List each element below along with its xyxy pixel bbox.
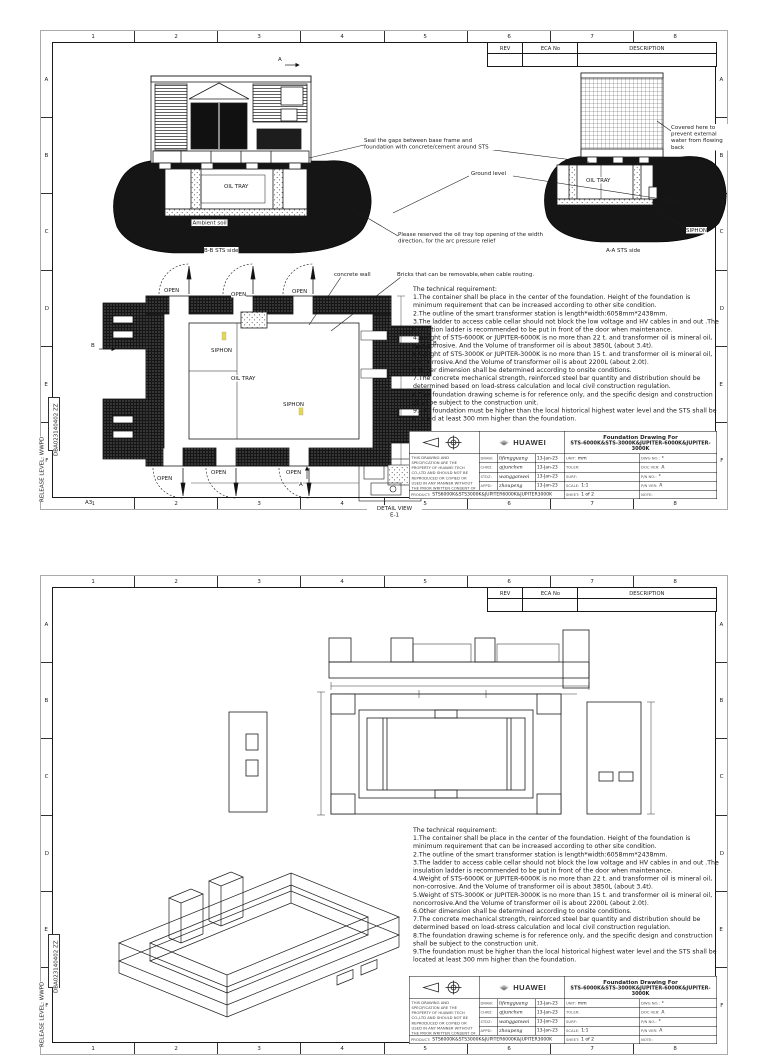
projection-symbol-2 — [410, 977, 480, 999]
plan-oil-pit — [189, 323, 359, 439]
standardized-by: wangganwei — [498, 472, 536, 481]
legal-notice: THIS DRAWING AND SPECIFICATION ARE THE P… — [410, 454, 480, 490]
label-bb-sts-side: B-B STS side — [204, 247, 238, 254]
cone-icon — [423, 438, 438, 447]
foundation-isometric-view — [119, 872, 399, 1017]
tech-item: 4.Weight of STS-6000K or JUPITER-6000K i… — [413, 875, 719, 891]
label-oil-tray-aa: OIL TRAY — [586, 177, 610, 184]
label-open-1: OPEN — [164, 287, 179, 294]
note-oil-tray-opening: Please reserved the oil tray top opening… — [398, 231, 553, 244]
sheet-number: 1 of 2 — [581, 492, 594, 497]
label-open-6: OPEN — [286, 469, 301, 476]
title-block: HUAWEI Foundation Drawing For STS-6000K&… — [409, 431, 717, 499]
plan-left-wing-bottom — [103, 399, 146, 459]
foundation-side-view-left — [229, 712, 267, 812]
drawing-sheet-2: 12345678 12345678 ABCDEF ABCDEF REV ECA … — [40, 575, 728, 1055]
huawei-flower-icon — [497, 982, 510, 994]
checked-by: qijunchen — [498, 463, 536, 472]
plan-view — [99, 264, 431, 498]
bb-gravel-strip — [165, 209, 307, 216]
scale-value: 1:1 — [581, 483, 588, 488]
tech-item: 3.The ladder to access cable cellar shou… — [413, 858, 719, 874]
release-level-2: RELEASE LEVEL: WWPD — [39, 982, 45, 1047]
technical-requirements: The technical requirement: 1.The contain… — [413, 285, 719, 423]
label-open-2: OPEN — [231, 291, 246, 298]
label-siphon-aa: SIPHON — [686, 227, 707, 234]
tech-item: 5.Weight of STS-3000K or JUPITER-3000K i… — [413, 891, 719, 907]
signature-table: DRAW:lifengguang13-Jan-23 CHKD:qijunchen… — [480, 454, 565, 490]
bb-section-view — [113, 65, 371, 253]
drawing-number-vertical-2: DBA023140402 ZZ — [53, 940, 59, 993]
label-siphon-plan-2: SIPHON — [283, 401, 304, 408]
tech-item: 9.The foundation must be higher than the… — [413, 948, 719, 964]
tech-item: 3.The ladder to access cable cellar shou… — [413, 317, 719, 333]
label-aa-sts-side: A-A STS side — [606, 247, 640, 254]
dwg-no: * — [662, 456, 664, 461]
drawing-number-vertical: DBA023140402 ZZ — [53, 403, 59, 456]
foundation-side-view-right — [587, 702, 641, 814]
foundation-plan-view — [331, 694, 561, 814]
tech-item: 1.The container shall be place in the ce… — [413, 293, 719, 309]
section-marker-a-bottom: A — [299, 481, 303, 488]
title-block-2: HUAWEI Foundation Drawing For STS-6000K&… — [409, 976, 717, 1044]
huawei-logo-2: HUAWEI — [480, 977, 565, 999]
tech-item: 9.The foundation must be higher than the… — [413, 407, 719, 423]
tech-item: 4.Weight of STS-6000K or JUPITER-6000K i… — [413, 334, 719, 350]
note-ground-level: Ground level — [471, 170, 506, 177]
tech-item: 7.The concrete mechanical strength, rein… — [413, 915, 719, 931]
approved-by: zhoupeng — [498, 481, 536, 490]
label-oil-tray-plan: OIL TRAY — [231, 375, 255, 382]
note-bricks-removable: Bricks that can be removable,when cable … — [397, 271, 534, 278]
sheet-size-a3: A3 — [85, 499, 92, 506]
plan-left-wing-top — [103, 303, 146, 349]
tech-item: 8.The foundation drawing scheme is for r… — [413, 390, 719, 406]
foundation-elevation-view — [329, 630, 589, 688]
tech-item: 6.Other dimension shall be determined ac… — [413, 907, 719, 915]
tech-item: 2.The outline of the smart transformer s… — [413, 850, 719, 858]
section-marker-b-left: B — [91, 342, 95, 349]
tech-item: 8.The foundation drawing scheme is for r… — [413, 931, 719, 947]
label-open-3: OPEN — [292, 288, 307, 295]
aa-container — [581, 73, 663, 157]
huawei-flower-icon — [497, 437, 510, 449]
label-open-5: OPEN — [211, 469, 226, 476]
aa-section-view — [544, 73, 726, 242]
company-name: HUAWEI — [513, 438, 546, 447]
drawing-sheet-1: 12345678 12345678 ABCDEF ABCDEF REV ECA … — [40, 30, 728, 510]
label-detail-view: DETAIL VIEWE-1 — [367, 505, 422, 518]
note-covered-here: Covered here to prevent external water f… — [671, 124, 730, 150]
tech-item: 1.The container shall be place in the ce… — [413, 834, 719, 850]
drawing-title-line2: STS-6000K&STS-3000K&JUPITER-6000K&JUPITE… — [565, 440, 717, 451]
tech-item: 6.Other dimension shall be determined ac… — [413, 366, 719, 374]
tech-title: The technical requirement: — [413, 285, 719, 293]
release-level: RELEASE LEVEL: WWPD — [39, 437, 45, 502]
section-marker-a-top: A — [278, 56, 282, 63]
document-page: { "sheet": { "cols": ["1","2","3","4","5… — [0, 0, 768, 1024]
drawn-by: lifengguang — [498, 454, 536, 463]
label-open-4: OPEN — [157, 475, 172, 482]
tech-item: 2.The outline of the smart transformer s… — [413, 309, 719, 317]
technical-requirements-2: The technical requirement: 1.The contain… — [413, 826, 719, 964]
label-concrete-wall: concrete wall — [334, 271, 371, 278]
number-fields: DWG NO.:* DOC VER:A P/N NO.:* P/N VER:A — [640, 454, 717, 490]
tech-item: 5.Weight of STS-3000K or JUPITER-3000K i… — [413, 350, 719, 366]
product-value: STS6000K&STS3000K&JUPITER6000K&JUPITER30… — [432, 492, 552, 497]
spec-fields: UNIT:mm TOLER: SURF: SCALE:1:1 — [565, 454, 640, 490]
label-siphon-plan-1: SIPHON — [211, 347, 232, 354]
tech-item: 7.The concrete mechanical strength, rein… — [413, 374, 719, 390]
huawei-logo: HUAWEI — [480, 432, 565, 454]
label-oil-tray-bb: OIL TRAY — [224, 183, 248, 190]
note-seal-gaps: Seal the gaps between base frame and fou… — [364, 137, 495, 150]
label-ambient-soil: Ambient soil — [191, 219, 228, 227]
projection-symbol — [410, 432, 480, 454]
